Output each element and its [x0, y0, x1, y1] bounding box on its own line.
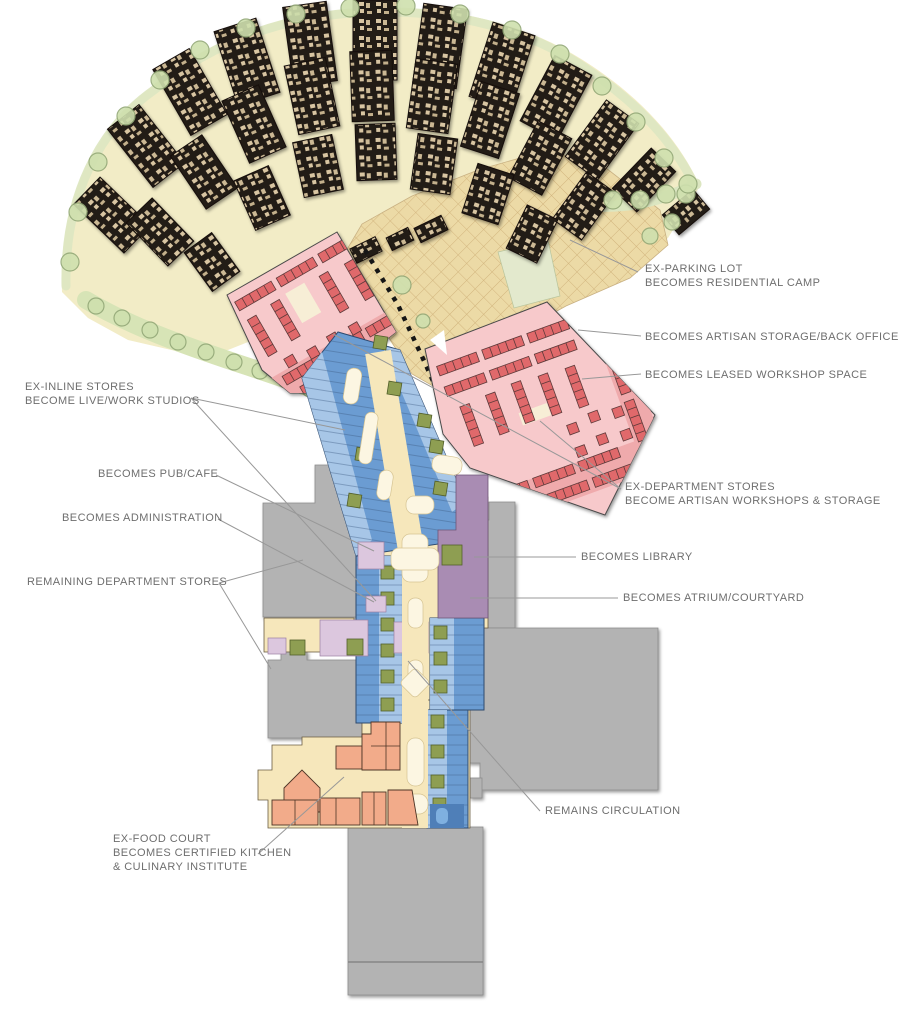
label-remains-circulation: REMAINS CIRCULATION [545, 804, 680, 818]
label-library: BECOMES LIBRARY [581, 550, 693, 564]
label-line: REMAINS CIRCULATION [545, 804, 680, 818]
label-artisan-storage: BECOMES ARTISAN STORAGE/BACK OFFICE [645, 330, 899, 344]
label-line: BECOMES LIBRARY [581, 550, 693, 564]
label-line: EX-INLINE STORES [25, 380, 200, 394]
label-atrium-courtyard: BECOMES ATRIUM/COURTYARD [623, 591, 804, 605]
label-line: & CULINARY INSTITUTE [113, 860, 292, 874]
site-plan-page: EX-PARKING LOT BECOMES RESIDENTIAL CAMP … [0, 0, 905, 1024]
label-line: EX-DEPARTMENT STORES [625, 480, 881, 494]
library-green-square [442, 545, 462, 565]
leader-artisan-storage [578, 330, 641, 336]
label-line: BECOMES PUB/CAFE [98, 467, 218, 481]
label-line: BECOMES CERTIFIED KITCHEN [113, 846, 292, 860]
label-ex-inline-stores: EX-INLINE STORES BECOME LIVE/WORK STUDIO… [25, 380, 200, 408]
label-line: BECOMES ARTISAN STORAGE/BACK OFFICE [645, 330, 899, 344]
label-administration: BECOMES ADMINISTRATION [62, 511, 223, 525]
label-line: EX-FOOD COURT [113, 832, 292, 846]
label-line: BECOME LIVE/WORK STUDIOS [25, 394, 200, 408]
dept-store-right [468, 628, 658, 790]
label-line: REMAINING DEPARTMENT STORES [27, 575, 227, 589]
label-remaining-dept-stores: REMAINING DEPARTMENT STORES [27, 575, 227, 589]
label-leased-workshop: BECOMES LEASED WORKSHOP SPACE [645, 368, 867, 382]
label-line: BECOMES ADMINISTRATION [62, 511, 223, 525]
label-line: BECOME ARTISAN WORKSHOPS & STORAGE [625, 494, 881, 508]
label-line: BECOMES LEASED WORKSHOP SPACE [645, 368, 867, 382]
label-line: BECOMES ATRIUM/COURTYARD [623, 591, 804, 605]
label-pub-cafe: BECOMES PUB/CAFE [98, 467, 218, 481]
dept-store-lower-left [268, 651, 362, 738]
grey-stub [470, 778, 482, 798]
label-line: EX-PARKING LOT [645, 262, 820, 276]
label-ex-parking: EX-PARKING LOT BECOMES RESIDENTIAL CAMP [645, 262, 820, 290]
label-line: BECOMES RESIDENTIAL CAMP [645, 276, 820, 290]
label-ex-department-stores: EX-DEPARTMENT STORES BECOME ARTISAN WORK… [625, 480, 881, 508]
dept-store-bottom [348, 827, 483, 995]
label-ex-food-court: EX-FOOD COURT BECOMES CERTIFIED KITCHEN … [113, 832, 292, 874]
